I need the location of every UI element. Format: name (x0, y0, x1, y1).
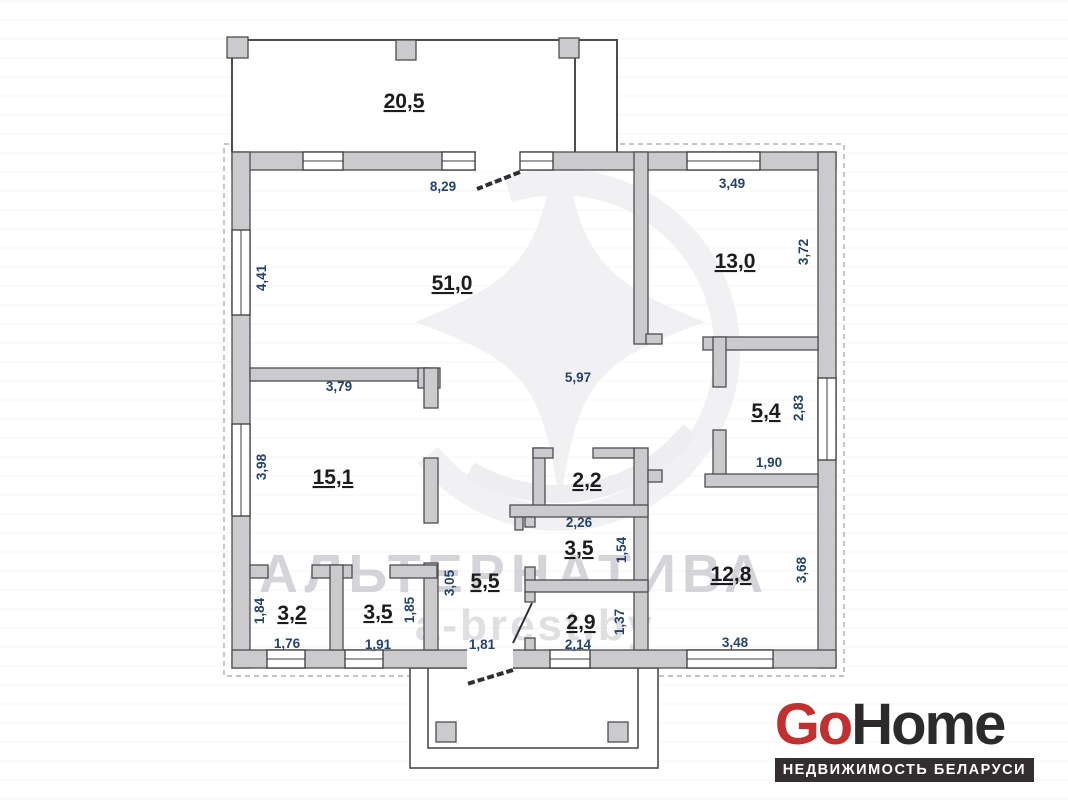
room-label-3-5-bottom: 3,5 (363, 601, 393, 624)
room-label-5-5: 5,5 (470, 570, 500, 593)
dim-3-49: 3,49 (719, 176, 745, 191)
window (687, 152, 760, 170)
window (232, 230, 250, 315)
dim-4-41: 4,41 (254, 264, 269, 291)
logo-home: Home (851, 692, 1004, 757)
window (550, 650, 590, 668)
floor-plan-page: АЛЬТЕРНАТИВА a-brest.by (0, 0, 1068, 800)
dim-2-26: 2,26 (566, 515, 593, 530)
window (520, 152, 553, 170)
porch-pillar (436, 722, 456, 742)
room-label-terrace: 20,5 (384, 90, 425, 113)
dim-3-05: 3,05 (442, 569, 457, 596)
dim-8-29: 8,29 (430, 179, 456, 194)
room-label-3-5-mid: 3,5 (564, 537, 594, 560)
porch-outline (410, 668, 658, 768)
window (818, 378, 836, 460)
room-label-5-4: 5,4 (751, 400, 781, 423)
window (232, 424, 250, 516)
gohome-logo: GoHome НЕДВИЖИМОСТЬ БЕЛАРУСИ (775, 696, 1034, 782)
room-label-13-0: 13,0 (715, 250, 756, 273)
room-label-12-8: 12,8 (711, 563, 752, 586)
dim-3-79: 3,79 (326, 379, 352, 394)
gohome-logo-text: GoHome (775, 696, 1034, 754)
room-label-2-9: 2,9 (566, 611, 595, 634)
logo-go: Go (775, 692, 852, 757)
dim-1-54: 1,54 (614, 536, 629, 563)
dim-3-72: 3,72 (796, 239, 811, 265)
window (687, 650, 773, 668)
dim-1-81: 1,81 (469, 637, 496, 652)
dim-5-97: 5,97 (565, 370, 591, 385)
room-label-2-2: 2,2 (572, 469, 601, 492)
dim-1-84: 1,84 (252, 597, 267, 624)
room-label-15-1: 15,1 (313, 466, 354, 489)
dim-1-76: 1,76 (274, 636, 301, 651)
floor-plan-drawing: АЛЬТЕРНАТИВА a-brest.by (0, 0, 1068, 800)
window (303, 152, 343, 170)
dim-2-14: 2,14 (565, 637, 592, 652)
watermark-star-logo (415, 120, 727, 518)
terrace-pillar (227, 37, 248, 58)
window (267, 650, 305, 668)
window (442, 152, 475, 170)
dim-1-37: 1,37 (612, 609, 627, 635)
logo-tagline: НЕДВИЖИМОСТЬ БЕЛАРУСИ (775, 758, 1034, 782)
dim-3-68: 3,68 (794, 556, 809, 583)
room-label-living: 51,0 (432, 272, 473, 295)
room-label-3-2: 3,2 (277, 602, 306, 625)
terrace-pillar (396, 40, 416, 60)
dim-1-90: 1,90 (756, 455, 782, 470)
terrace-pillar (559, 38, 579, 58)
dim-1-85: 1,85 (402, 596, 417, 623)
dim-3-98: 3,98 (254, 453, 269, 480)
dim-2-83: 2,83 (791, 394, 806, 421)
window (345, 650, 383, 668)
dim-1-91: 1,91 (365, 637, 392, 652)
porch-pillar (608, 722, 628, 742)
dim-3-48: 3,48 (722, 635, 749, 650)
